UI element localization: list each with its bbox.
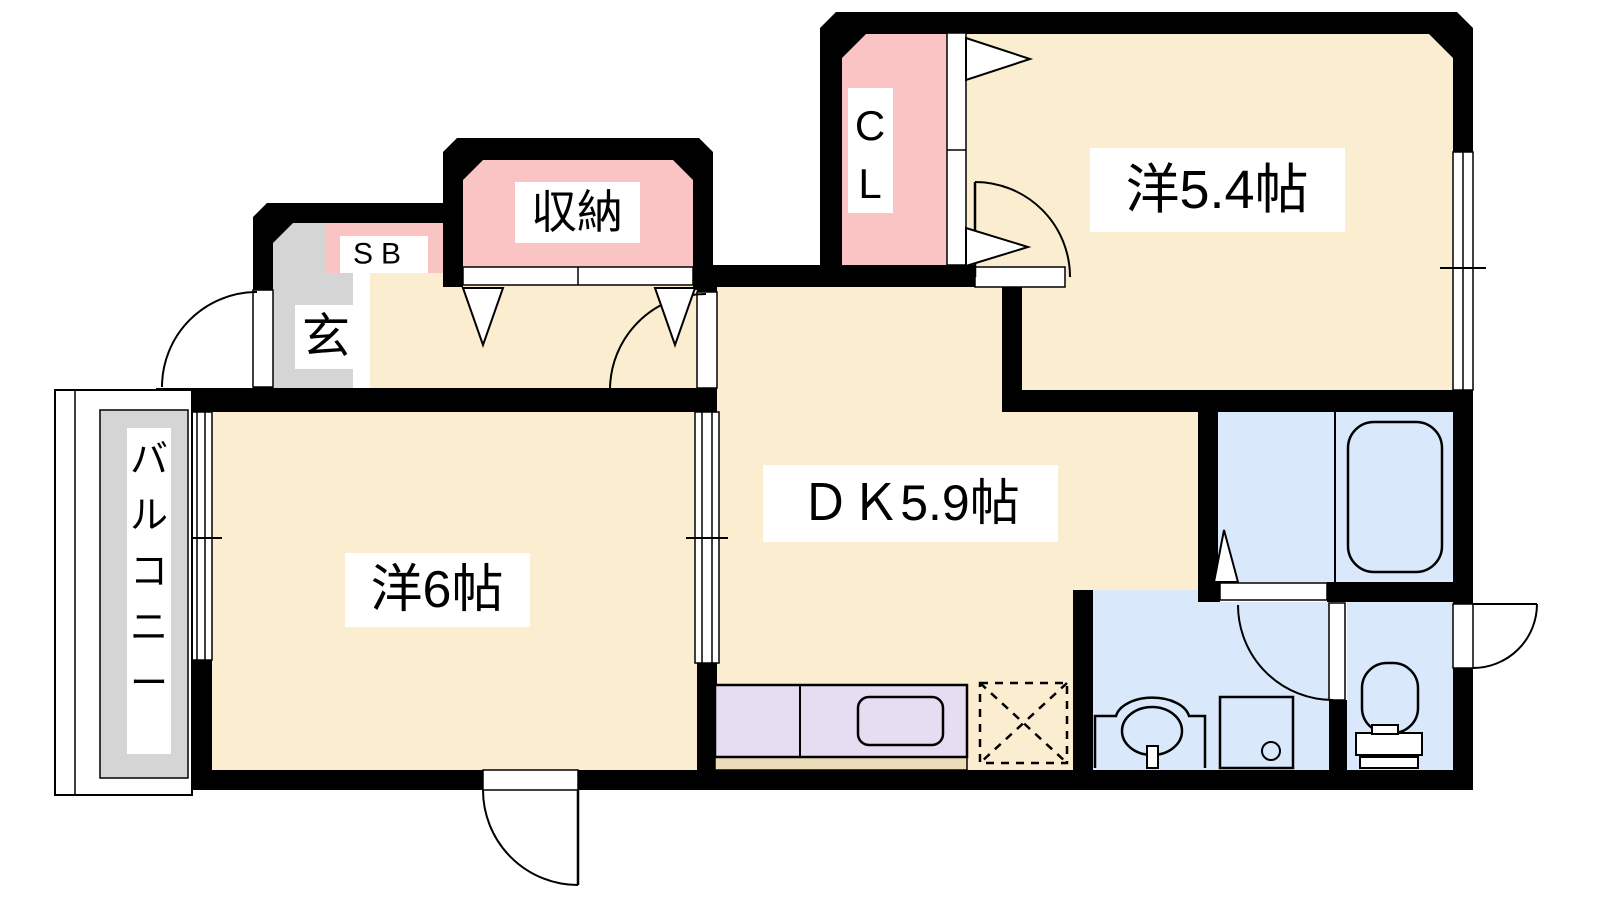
west-room-bottom-door <box>483 770 578 885</box>
dining-kitchen-label: ＤＫ5.9帖 <box>800 475 1020 531</box>
kitchen-kick-strip <box>715 757 967 770</box>
east-room-label: 洋5.4帖 <box>1125 160 1308 220</box>
floor-plan: 洋5.4帖 洋6帖 ＤＫ5.9帖 収納 CL SB 玄 バルコニー <box>0 0 1600 900</box>
balcony-label: バルコニー <box>130 439 168 705</box>
toilet-door <box>1453 604 1537 668</box>
entrance-label: 玄 <box>302 311 350 364</box>
west-room-label: 洋6帖 <box>371 561 504 619</box>
balcony <box>55 390 192 795</box>
storage-label: 収納 <box>531 186 623 238</box>
hallway-floor <box>370 273 697 390</box>
shoe-box-label: SB <box>353 238 409 271</box>
washroom-floor-left <box>1093 590 1198 770</box>
entrance-door <box>156 290 273 389</box>
